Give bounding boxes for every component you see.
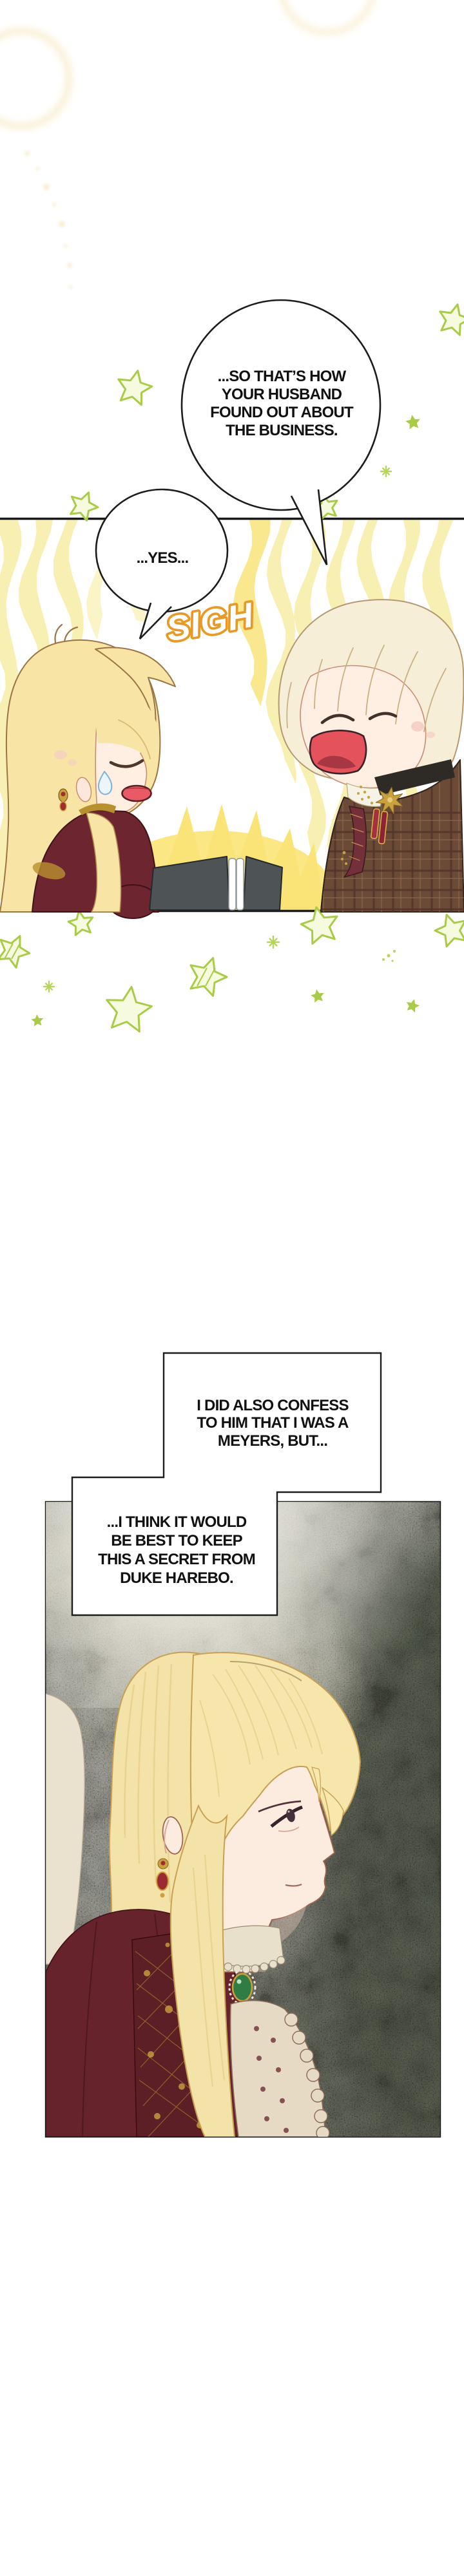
svg-text:BE BEST TO KEEP: BE BEST TO KEEP bbox=[111, 1532, 242, 1549]
svg-text:DUKE HAREBO.: DUKE HAREBO. bbox=[120, 1569, 233, 1587]
svg-text:YOUR HUSBAND: YOUR HUSBAND bbox=[222, 386, 342, 403]
svg-text:FOUND OUT ABOUT: FOUND OUT ABOUT bbox=[210, 404, 354, 421]
svg-text:...YES...: ...YES... bbox=[137, 549, 189, 567]
svg-text:...SO THAT’S HOW: ...SO THAT’S HOW bbox=[218, 368, 347, 385]
svg-text:THE BUSINESS.: THE BUSINESS. bbox=[226, 422, 338, 439]
svg-text:MEYERS, BUT...: MEYERS, BUT... bbox=[218, 1432, 327, 1450]
svg-text:...I THINK IT WOULD: ...I THINK IT WOULD bbox=[107, 1513, 247, 1531]
svg-text:THIS A SECRET FROM: THIS A SECRET FROM bbox=[98, 1551, 255, 1568]
svg-text:I DID ALSO CONFESS: I DID ALSO CONFESS bbox=[197, 1397, 349, 1414]
svg-text:TO HIM THAT I WAS A: TO HIM THAT I WAS A bbox=[197, 1414, 348, 1432]
